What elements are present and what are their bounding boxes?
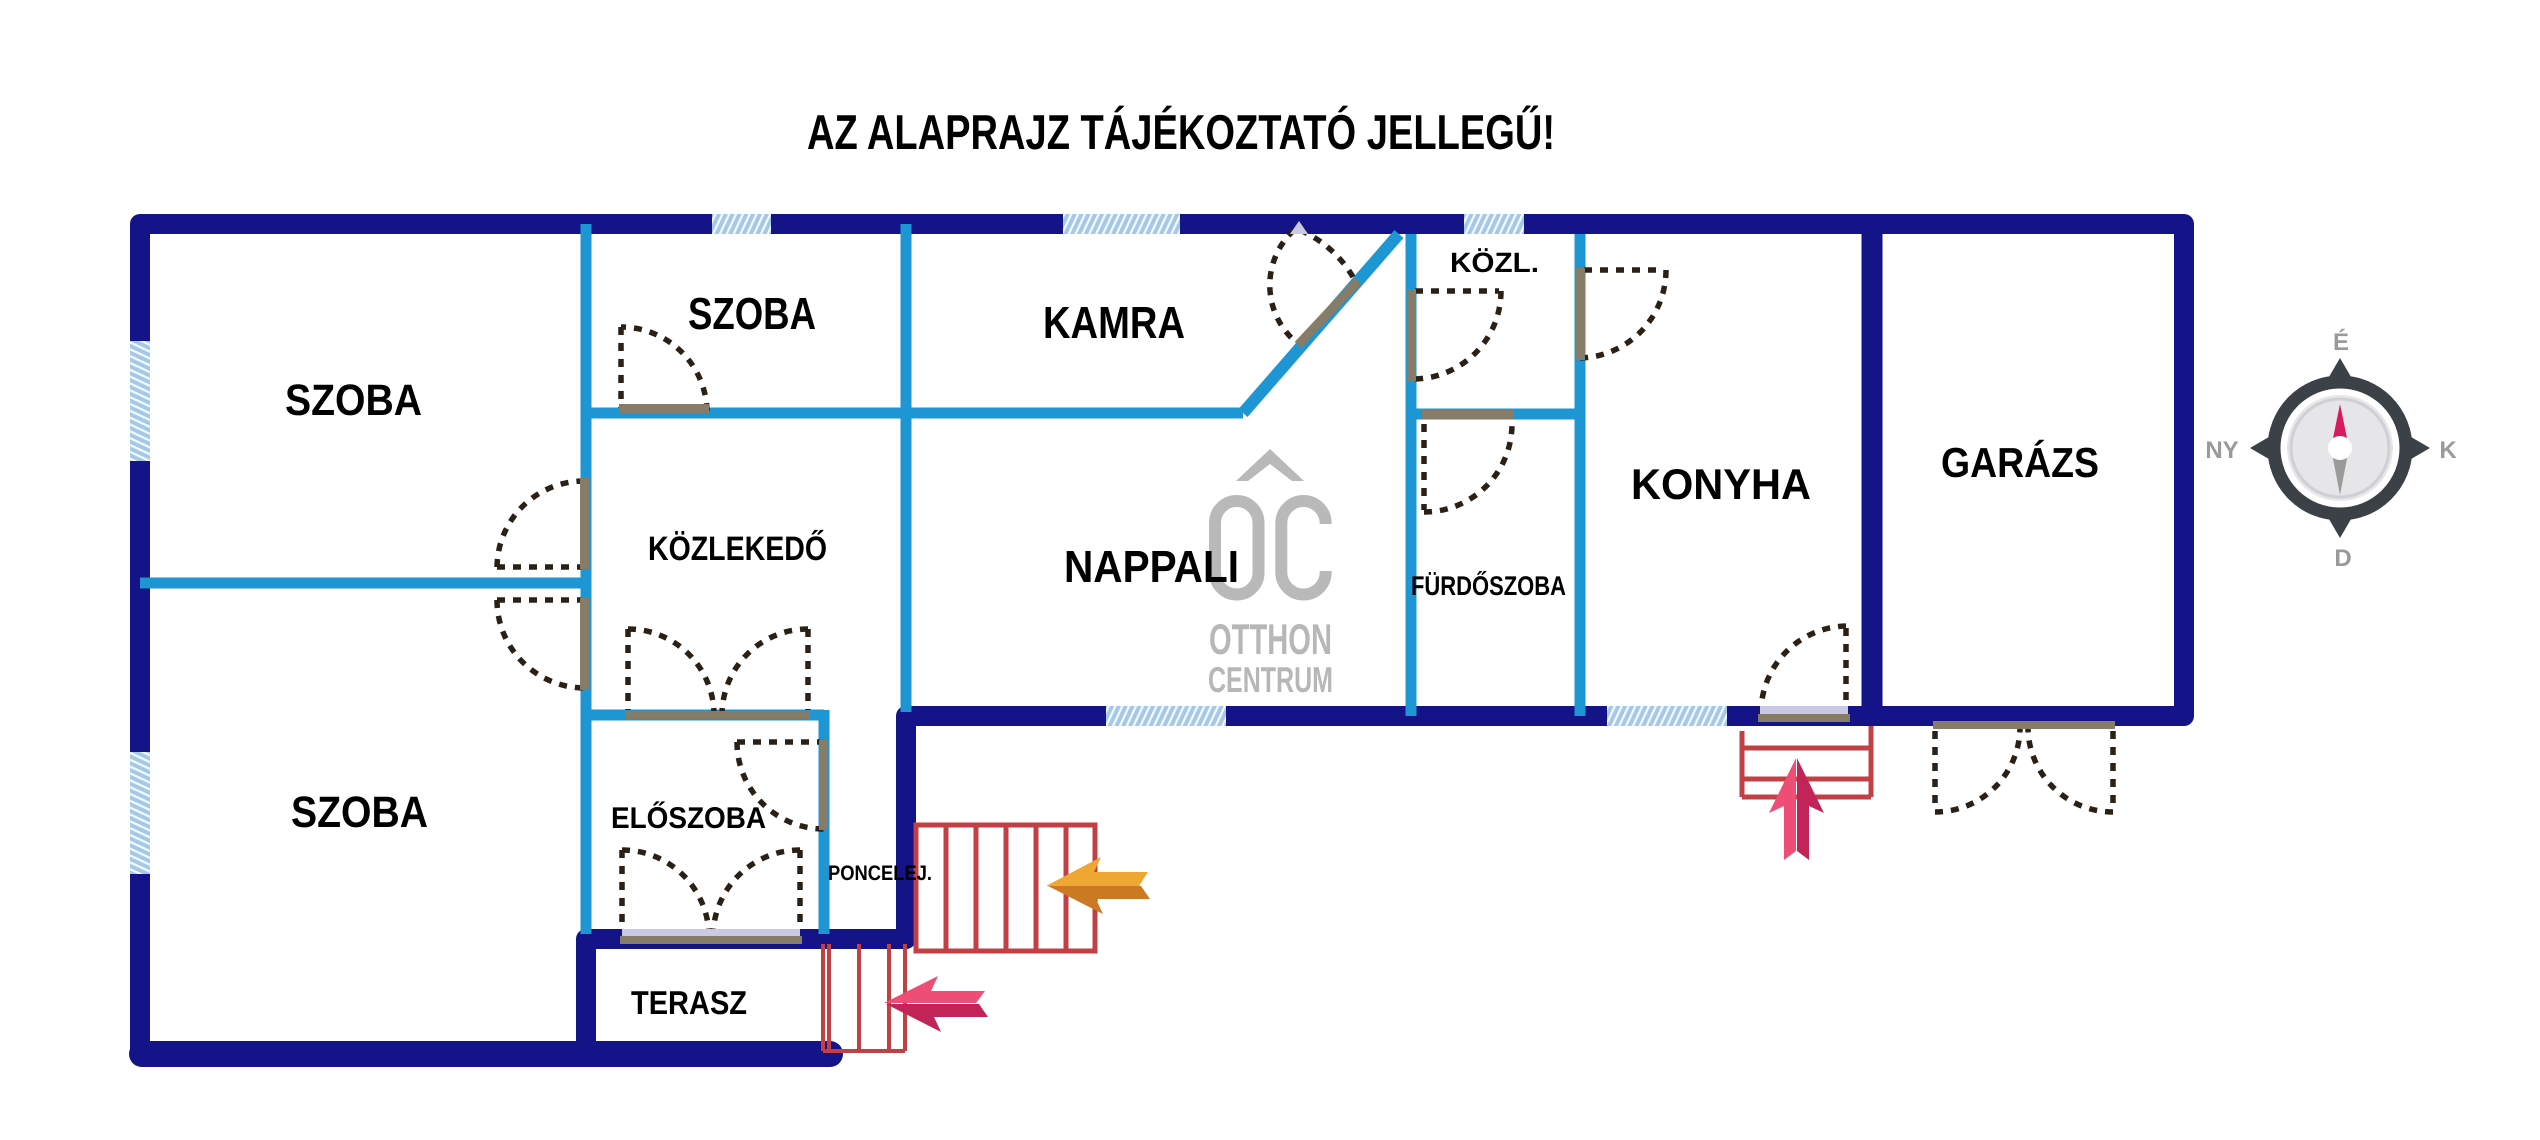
svg-text:OTTHON: OTTHON bbox=[1209, 616, 1332, 664]
svg-text:KÖZL.: KÖZL. bbox=[1450, 247, 1539, 278]
svg-text:D: D bbox=[2334, 545, 2351, 572]
svg-text:ELŐSZOBA: ELŐSZOBA bbox=[611, 801, 766, 835]
svg-text:AZ ALAPRAJZ TÁJÉKOZTATÓ JELLEG: AZ ALAPRAJZ TÁJÉKOZTATÓ JELLEGŰ! bbox=[807, 105, 1555, 160]
svg-text:CENTRUM: CENTRUM bbox=[1208, 659, 1333, 700]
svg-text:NAPPALI: NAPPALI bbox=[1064, 541, 1239, 592]
svg-text:K: K bbox=[2439, 437, 2457, 464]
svg-text:NY: NY bbox=[2205, 437, 2238, 464]
svg-text:SZOBA: SZOBA bbox=[688, 288, 816, 339]
svg-text:PONCELEJ.: PONCELEJ. bbox=[828, 862, 932, 885]
svg-text:É: É bbox=[2333, 328, 2349, 356]
svg-text:FÜRDŐSZOBA: FÜRDŐSZOBA bbox=[1411, 571, 1566, 601]
svg-text:SZOBA: SZOBA bbox=[291, 788, 428, 837]
svg-text:KÖZLEKEDŐ: KÖZLEKEDŐ bbox=[648, 529, 827, 568]
svg-text:KONYHA: KONYHA bbox=[1631, 461, 1811, 509]
svg-text:KAMRA: KAMRA bbox=[1043, 297, 1185, 348]
svg-text:TERASZ: TERASZ bbox=[631, 984, 747, 1021]
svg-text:SZOBA: SZOBA bbox=[285, 376, 422, 425]
svg-text:GARÁZS: GARÁZS bbox=[1941, 439, 2099, 486]
